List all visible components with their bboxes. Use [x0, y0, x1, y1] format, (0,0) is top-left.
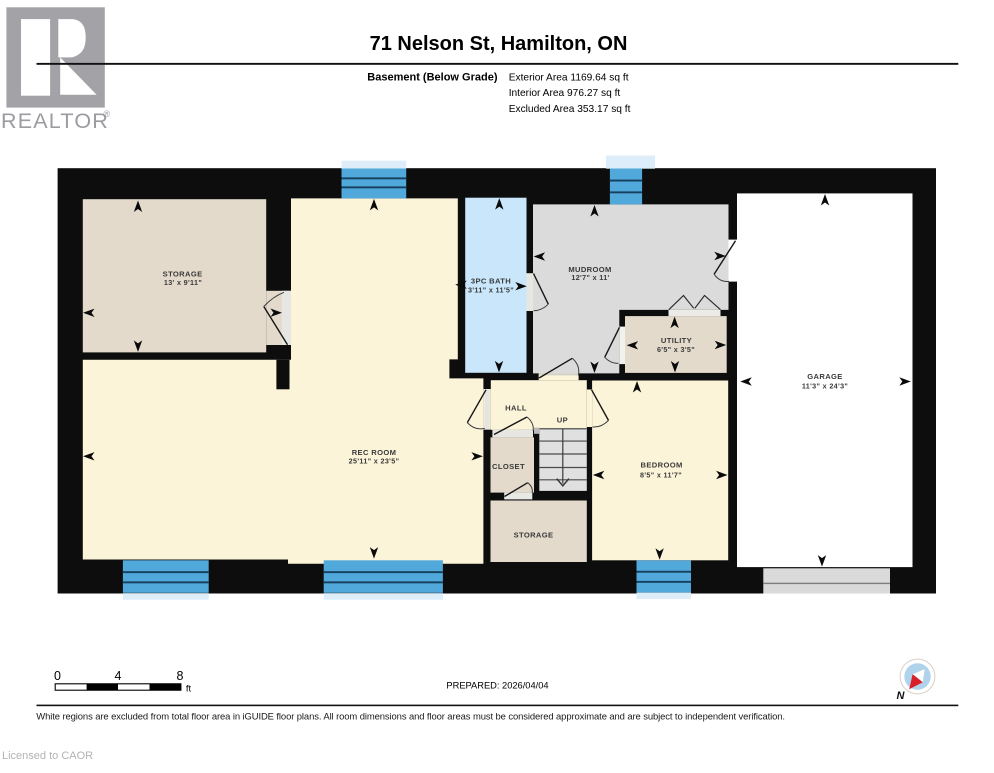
svg-text:13' x 9'11": 13' x 9'11" — [164, 278, 202, 287]
svg-text:8'5" x 11'7": 8'5" x 11'7" — [640, 471, 682, 480]
svg-text:GARAGE: GARAGE — [807, 372, 842, 381]
svg-text:11'3" x 24'3": 11'3" x 24'3" — [802, 381, 848, 390]
svg-text:6'5" x 3'5": 6'5" x 3'5" — [657, 345, 695, 354]
svg-text:71 Nelson St, Hamilton, ON: 71 Nelson St, Hamilton, ON — [370, 33, 628, 55]
svg-text:UP: UP — [557, 415, 568, 424]
svg-text:12'7" x 11': 12'7" x 11' — [571, 273, 609, 282]
svg-text:REALTOR: REALTOR — [1, 109, 109, 133]
svg-text:Interior Area 976.27 sq ft: Interior Area 976.27 sq ft — [509, 88, 621, 99]
svg-text:PREPARED: 2026/04/04: PREPARED: 2026/04/04 — [446, 681, 548, 691]
svg-text:8: 8 — [177, 669, 184, 683]
svg-text:White regions are excluded fro: White regions are excluded from total fl… — [36, 712, 785, 723]
svg-text:CLOSET: CLOSET — [492, 462, 525, 471]
svg-text:Excluded Area 353.17 sq ft: Excluded Area 353.17 sq ft — [509, 104, 631, 115]
svg-text:HALL: HALL — [505, 403, 527, 412]
svg-text:Licensed to CAOR: Licensed to CAOR — [2, 750, 93, 762]
svg-text:STORAGE: STORAGE — [163, 269, 203, 278]
svg-text:Basement (Below Grade): Basement (Below Grade) — [367, 72, 498, 84]
svg-text:25'11" x 23'5": 25'11" x 23'5" — [349, 457, 400, 466]
svg-text:STORAGE: STORAGE — [514, 531, 554, 540]
svg-text:Exterior Area 1169.64 sq ft: Exterior Area 1169.64 sq ft — [509, 73, 629, 84]
svg-text:3PC BATH: 3PC BATH — [471, 277, 511, 286]
svg-text:UTILITY: UTILITY — [661, 336, 692, 345]
svg-text:0: 0 — [54, 669, 61, 683]
svg-text:4: 4 — [115, 669, 122, 683]
svg-text:N: N — [897, 690, 906, 702]
svg-text:®: ® — [104, 109, 111, 119]
svg-text:3'11" x 11'5": 3'11" x 11'5" — [468, 286, 514, 295]
svg-text:BEDROOM: BEDROOM — [641, 460, 683, 469]
svg-text:ft: ft — [186, 684, 192, 695]
